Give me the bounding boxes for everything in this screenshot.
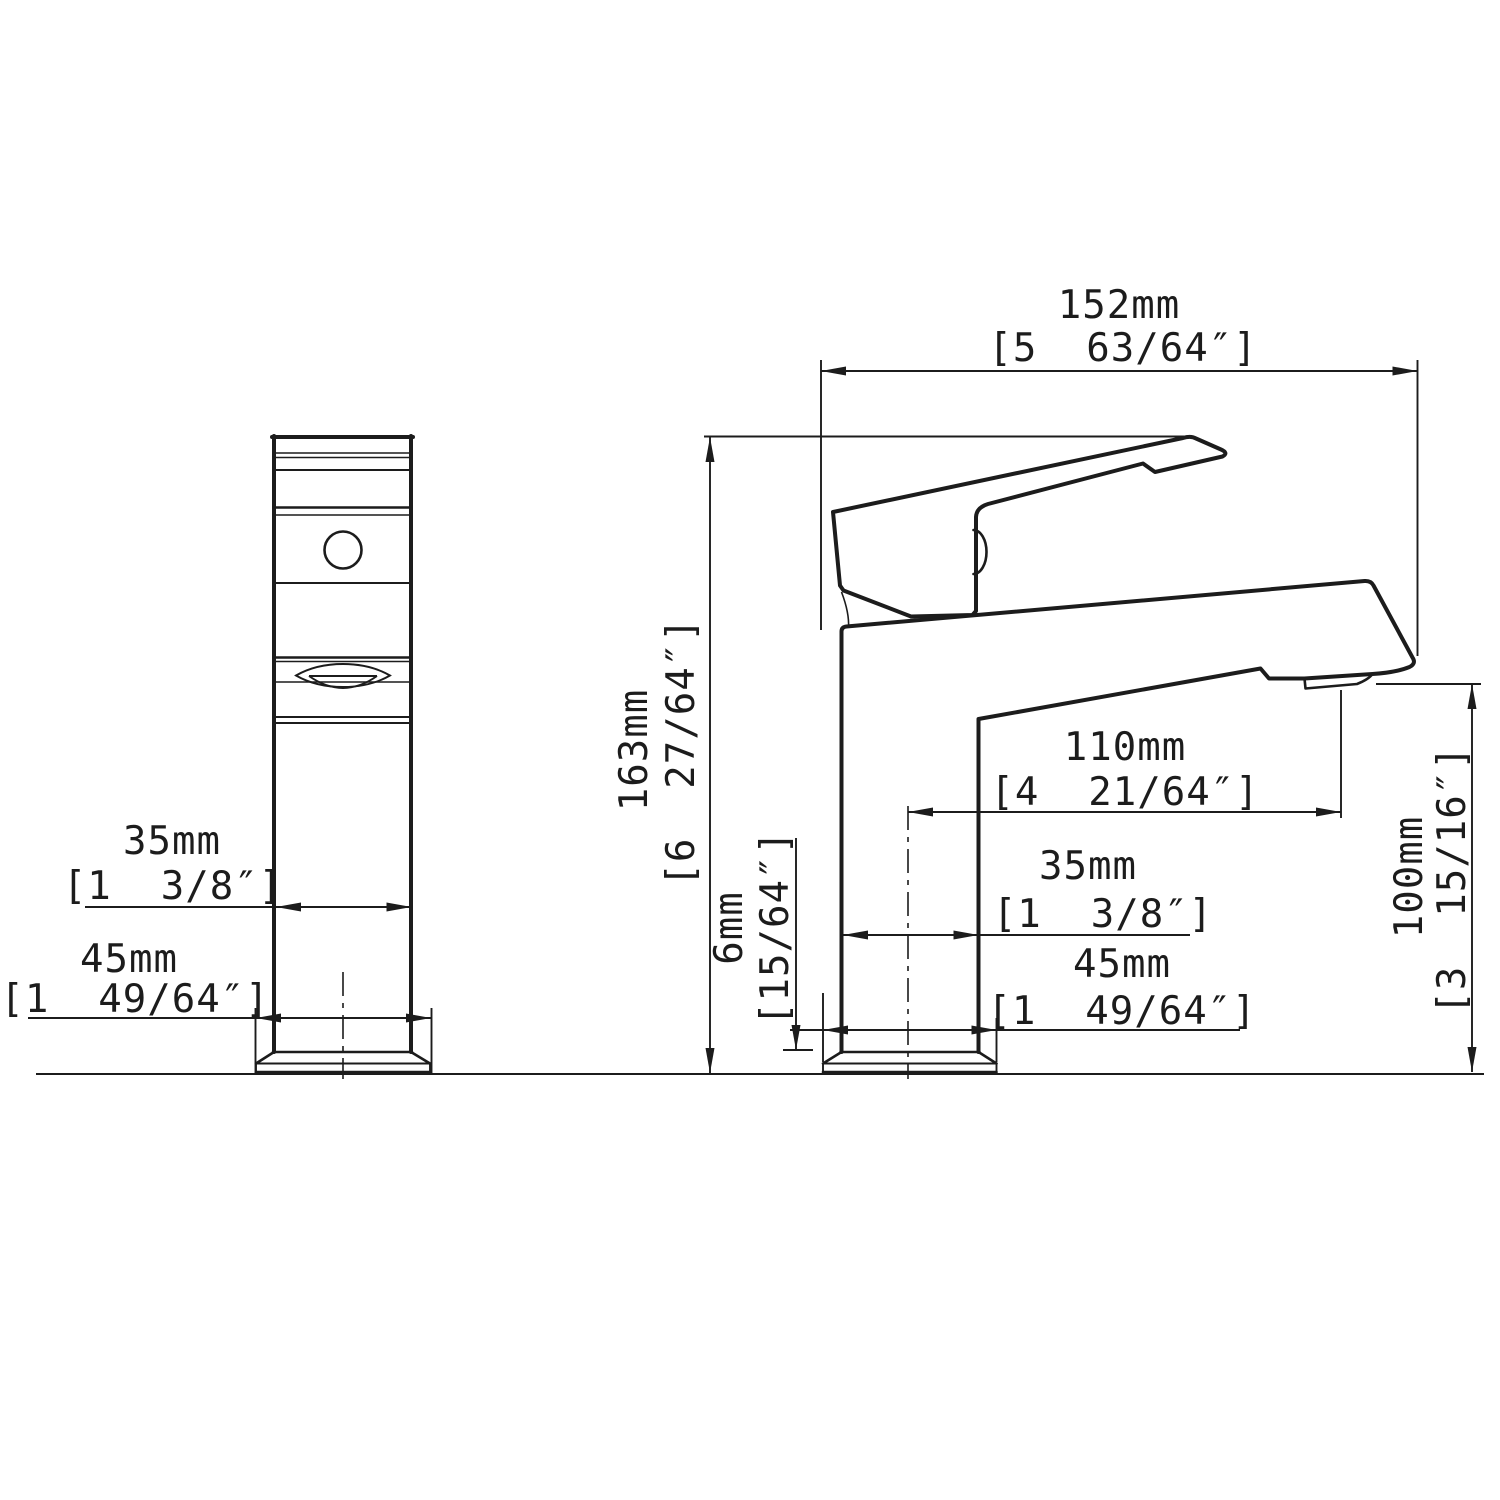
faucet-technical-drawing: 152mm [5 63/64″] 163mm [6 27/64″] 6mm [1… <box>0 0 1500 1500</box>
dim-label-inch: [1 3/8″] <box>993 892 1213 937</box>
dim-side-body-width: 35mm [1 3/8″] <box>843 844 1213 940</box>
arrowhead <box>954 931 979 940</box>
arrowhead <box>908 808 933 817</box>
dim-label-mm: 45mm <box>80 937 178 982</box>
dim-front-base-width: 45mm [1 49/64″] <box>0 937 431 1074</box>
dim-label-inch: [1 3/8″] <box>63 864 283 909</box>
arrowhead <box>1393 367 1418 376</box>
dim-label-mm: 163mm <box>612 689 657 811</box>
dim-label-inch: [4 21/64″] <box>990 770 1259 815</box>
dim-side-base-width: 45mm [1 49/64″] <box>790 942 1257 1062</box>
handle-front-curve <box>842 592 849 628</box>
front-detail-lines <box>274 453 411 723</box>
arrowhead <box>1316 808 1341 817</box>
side-base <box>823 1052 997 1072</box>
dim-label-mm: 152mm <box>1058 283 1180 328</box>
dim-base-plate-height: 6mm [15/64″] <box>707 830 813 1050</box>
dim-label-mm: 35mm <box>1039 844 1137 889</box>
arrowhead <box>406 1014 431 1023</box>
arrowhead <box>821 367 846 376</box>
dim-label-inch: [3 15/16″] <box>1430 745 1475 1014</box>
dim-label-inch: [1 49/64″] <box>987 989 1256 1034</box>
dim-label-inch: [5 63/64″] <box>988 326 1257 371</box>
dim-label-mm: 45mm <box>1073 942 1171 987</box>
dim-front-body-width: 35mm [1 3/8″] <box>63 819 412 912</box>
arrowhead <box>843 931 868 940</box>
base-chamfer-right <box>979 1052 997 1064</box>
front-view <box>256 436 430 1079</box>
dim-label-inch: [15/64″] <box>753 830 798 1026</box>
dim-label-mm: 110mm <box>1064 725 1186 770</box>
dim-spout-height: 100mm [3 15/16″] <box>1376 684 1481 1072</box>
base-chamfer-left <box>256 1052 274 1064</box>
arrowhead <box>1468 684 1477 709</box>
handle-screw-circle <box>325 532 362 569</box>
arrowhead <box>706 1048 715 1073</box>
base-chamfer-left <box>823 1052 842 1064</box>
dim-spout-reach: 110mm [4 21/64″] <box>908 690 1341 818</box>
arrowhead <box>823 1026 848 1035</box>
arrowhead <box>706 437 715 462</box>
dim-label-inch: [1 49/64″] <box>0 977 269 1022</box>
base-chamfer-right <box>411 1052 430 1064</box>
arrowhead <box>387 903 412 912</box>
arrowhead <box>1468 1047 1477 1072</box>
dim-label-mm: 100mm <box>1387 816 1432 938</box>
dim-label-mm: 6mm <box>707 891 752 964</box>
handle-lever-outline <box>833 437 1225 617</box>
dim-label-mm: 35mm <box>123 819 221 864</box>
arrowhead <box>792 1025 801 1050</box>
dim-label-inch: [6 27/64″] <box>659 617 704 886</box>
